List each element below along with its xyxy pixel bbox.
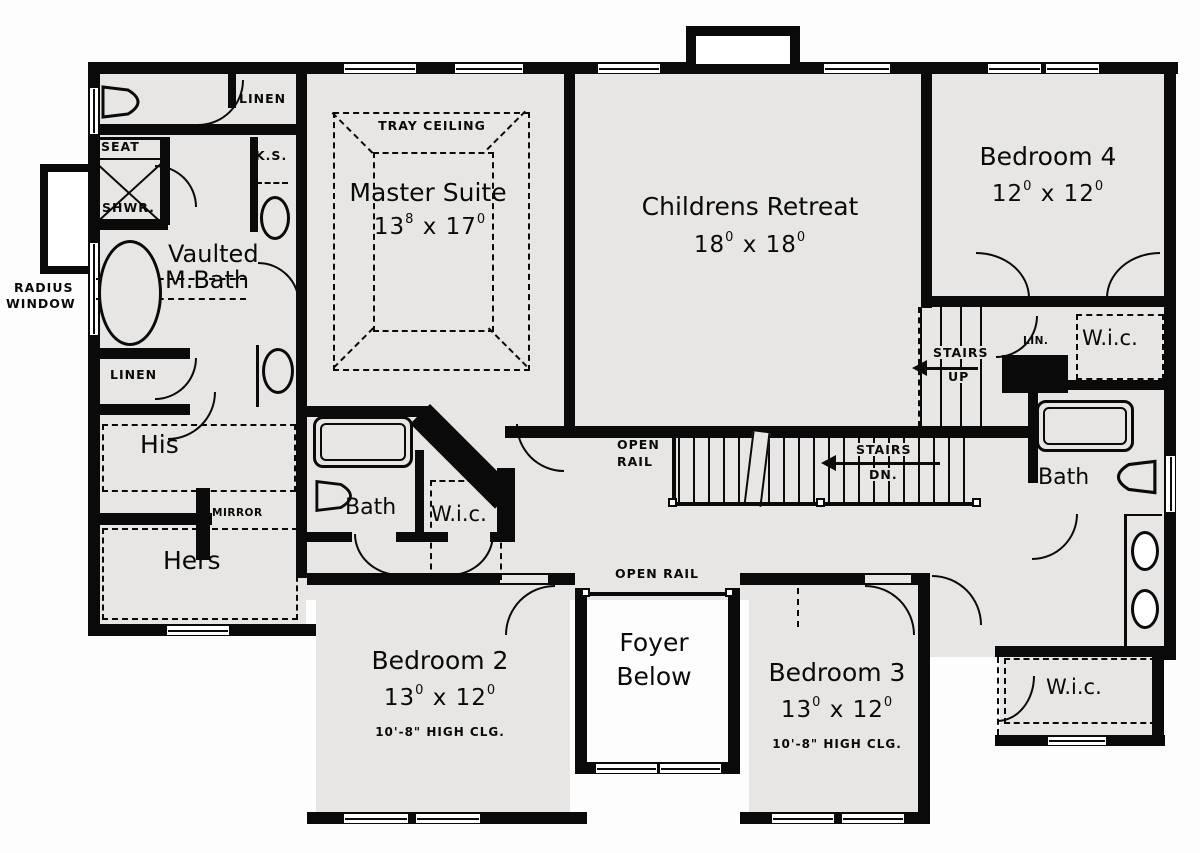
bathtub-oval (98, 240, 162, 346)
label-open-rail-foyer: OPEN RAIL (615, 567, 699, 580)
dashed-line (797, 577, 799, 627)
label-stairs-up-1: STAIRS (933, 346, 989, 359)
window (90, 88, 98, 134)
label-wic-bottom-right: W.i.c. (1046, 676, 1102, 698)
label-open-rail-stairs-2: RAIL (617, 455, 653, 468)
wall (396, 532, 424, 542)
room-label-hers: Hers (163, 548, 220, 574)
open-rail (672, 432, 676, 504)
room-label-bedroom3: Bedroom 3 (769, 660, 906, 686)
wall (88, 124, 296, 135)
wall (728, 588, 740, 774)
toilet (100, 84, 150, 120)
label-radius-window-1: RADIUS (14, 281, 73, 294)
window (842, 814, 904, 823)
label-lin: LIN. (1023, 336, 1048, 347)
dim-bedroom2: 130 x 120 (384, 686, 496, 710)
window (596, 764, 657, 773)
stairs-up-arrowhead (912, 360, 927, 376)
window (344, 814, 408, 823)
rail-post (816, 498, 825, 507)
label-ks: K.S. (255, 149, 287, 162)
sink (262, 348, 294, 394)
rail-post (725, 588, 734, 597)
stairs-down-arrow (836, 462, 940, 465)
room-label-his: His (140, 432, 179, 458)
bay-window-inner (48, 172, 88, 266)
stair-rail (674, 502, 980, 506)
floor-plan: Master Suite 138 x 170 TRAY CEILING Chil… (0, 0, 1200, 853)
label-open-rail-stairs-1: OPEN (617, 438, 660, 451)
door-opening (865, 575, 911, 583)
ceiling-note-bedroom2: 10'-8" HIGH CLG. (375, 726, 505, 739)
bathtub (1036, 400, 1134, 452)
dim-bedroom4: 120 x 120 (992, 182, 1104, 206)
closet-shelf-his (102, 424, 296, 492)
wall (415, 450, 424, 542)
label-linen-top: LINEN (239, 92, 286, 105)
stairs-down-arrowhead (821, 455, 836, 471)
room-label-mbath-line2: M.Bath (165, 268, 249, 293)
window (416, 814, 480, 823)
sink (1131, 589, 1159, 629)
room-label-bath-right: Bath (1038, 466, 1089, 489)
wall (564, 62, 575, 432)
label-linen-mid: LINEN (110, 368, 157, 381)
wall (296, 62, 307, 578)
bathtub (313, 416, 413, 468)
rail-post (581, 588, 590, 597)
door-opening (500, 575, 548, 583)
ceiling-note-bedroom3: 10'-8" HIGH CLG. (772, 738, 902, 751)
rail-post (668, 498, 677, 507)
room-label-foyer-line2: Below (616, 664, 691, 690)
window (824, 64, 890, 73)
label-stairs-dn-1: STAIRS (856, 443, 912, 456)
label-seat: SEAT (101, 140, 140, 153)
window (344, 64, 416, 73)
toilet (1106, 458, 1158, 496)
window (598, 64, 660, 73)
window (455, 64, 523, 73)
wall (1164, 62, 1176, 660)
wall (307, 532, 352, 542)
window (660, 764, 721, 773)
room-label-foyer-line1: Foyer (619, 630, 688, 656)
wall (918, 573, 930, 824)
room-label-bath-mid: Bath (345, 496, 396, 519)
window (167, 626, 229, 635)
window (772, 814, 834, 823)
sink (1131, 531, 1159, 571)
sink (260, 196, 290, 240)
room-label-childrens-retreat: Childrens Retreat (642, 194, 859, 220)
wall (1068, 380, 1176, 390)
foyer-open-rail (589, 592, 727, 596)
rail-post (972, 498, 981, 507)
window (1048, 737, 1106, 745)
wall (575, 588, 587, 774)
window (988, 64, 1041, 73)
dashed-line (256, 182, 288, 184)
dim-bedroom3: 130 x 120 (781, 698, 893, 722)
tray-ceiling-label: TRAY CEILING (378, 119, 486, 132)
label-mirror: MIRROR (212, 508, 263, 519)
window (1166, 456, 1175, 512)
chimney-inner (696, 36, 790, 64)
room-label-bedroom2: Bedroom 2 (372, 648, 509, 674)
label-wic-top-right: W.i.c. (1082, 327, 1138, 349)
room-label-mbath-line1: Vaulted (168, 242, 259, 267)
label-radius-window-2: WINDOW (6, 297, 76, 310)
room-label-master-suite: Master Suite (349, 180, 506, 206)
dim-childrens-retreat: 180 x 180 (694, 233, 806, 257)
vanity-counter-line (256, 345, 259, 407)
window (1046, 64, 1099, 73)
room-label-bedroom4: Bedroom 4 (980, 144, 1117, 170)
radius-window (90, 243, 98, 335)
dim-master-suite: 138 x 170 (374, 215, 486, 239)
label-wic-mid: W.i.c. (431, 503, 487, 525)
wall (921, 62, 932, 308)
label-shwr: SHWR. (102, 201, 155, 214)
wall (88, 513, 212, 525)
label-stairs-dn-2: DN. (869, 468, 898, 481)
label-stairs-up-2: UP (948, 370, 969, 383)
